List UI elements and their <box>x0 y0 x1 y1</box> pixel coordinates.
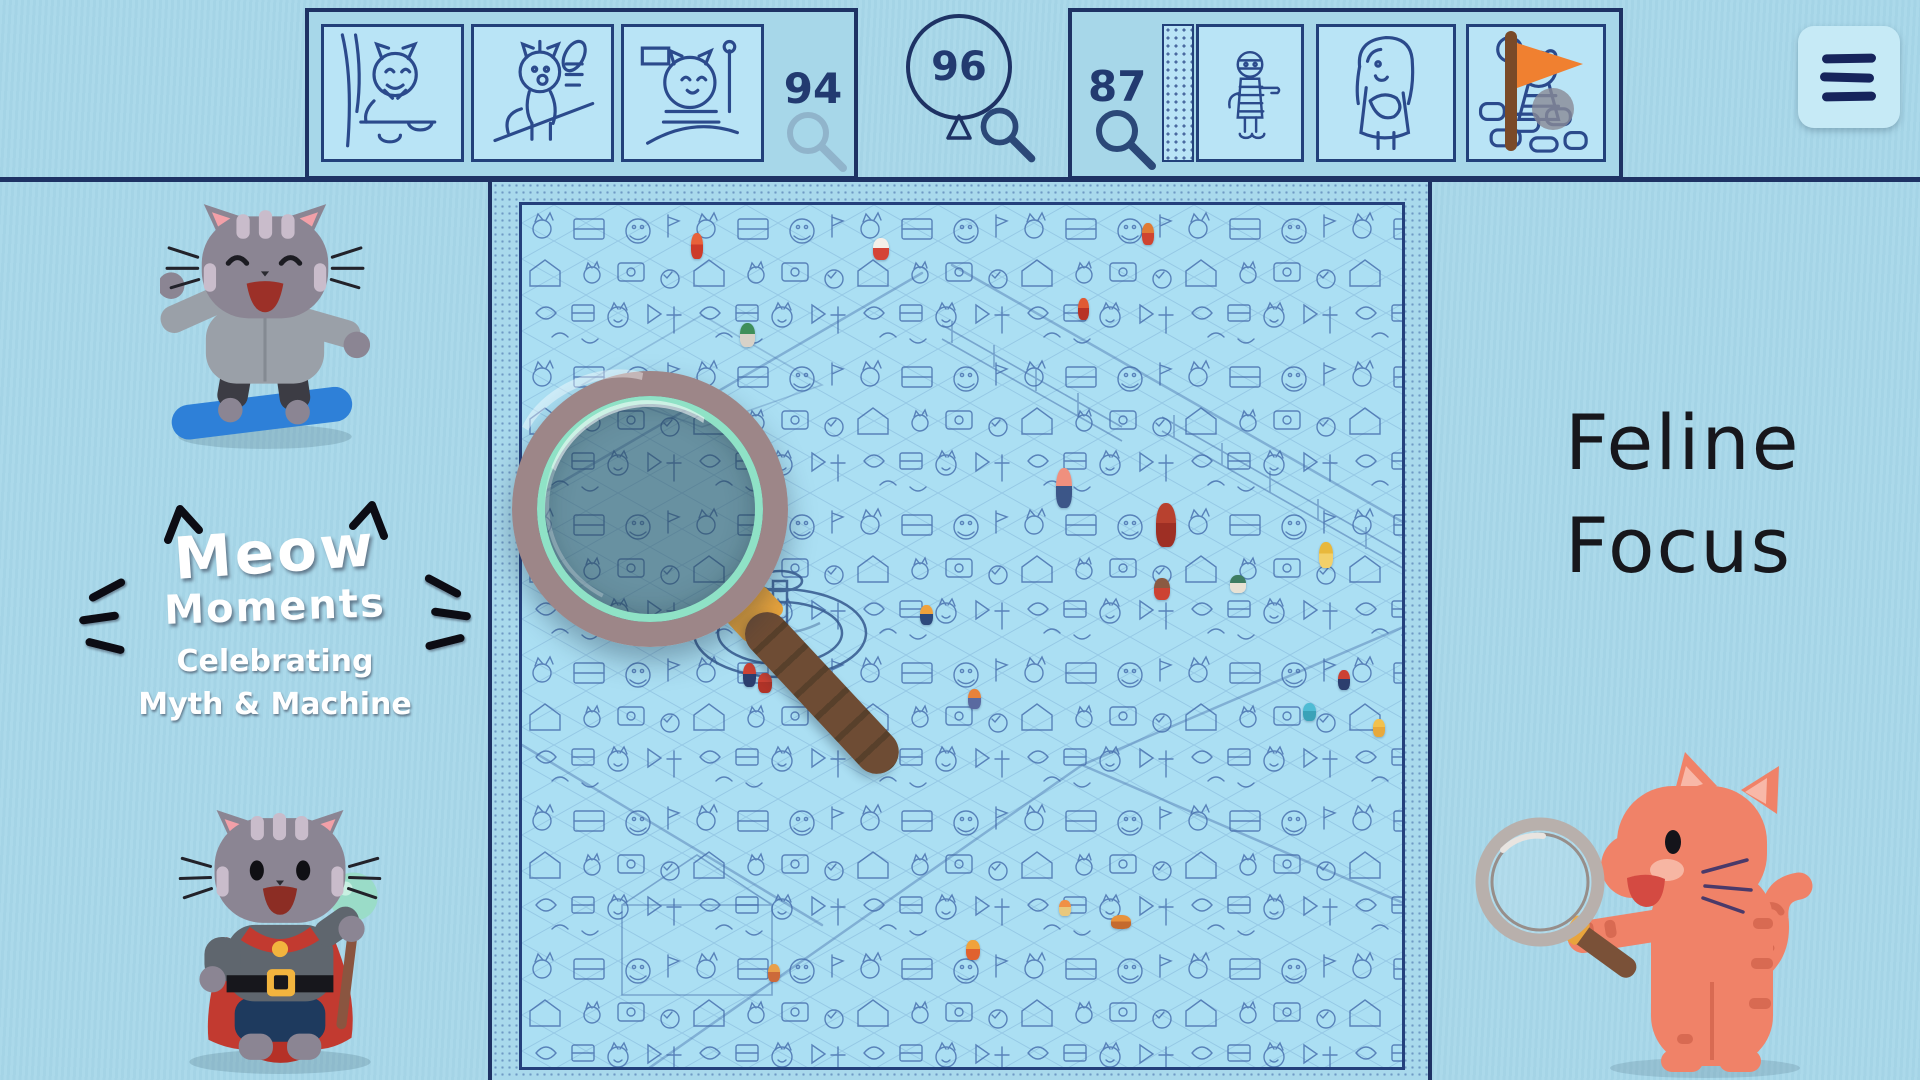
magnifying-glass-icon[interactable] <box>1090 104 1160 174</box>
found-items-panel-left: 94 <box>305 8 858 180</box>
red-climber-sprite[interactable] <box>1078 298 1089 320</box>
violinist-sprite[interactable] <box>1338 670 1350 690</box>
startled-cat-doodle-icon <box>474 27 611 159</box>
fountain-kid-sprite[interactable] <box>920 605 933 625</box>
magnifying-glass-icon[interactable] <box>975 102 1041 168</box>
halftone-strip <box>1162 24 1194 162</box>
orange-flag-icon <box>1471 25 1605 157</box>
orange-kitten-sprite[interactable] <box>1059 900 1071 916</box>
menu-button[interactable] <box>1798 26 1900 128</box>
kneeling-red-robe-sprite[interactable] <box>758 673 772 693</box>
magnifying-glass-icon[interactable] <box>781 106 851 176</box>
startled-cat-on-table-thumbnail[interactable] <box>471 24 614 162</box>
cat-on-ride-doodle-icon <box>624 27 761 159</box>
balloon-counter-value: 96 <box>931 44 987 90</box>
teal-mermaid-sprite[interactable] <box>1303 703 1316 721</box>
red-caped-bear-sprite[interactable] <box>1154 578 1170 600</box>
balloon-knot-icon <box>944 114 974 142</box>
red-climbing-kid-sprite[interactable] <box>691 233 703 259</box>
found-items-panel-right: 87 <box>1068 8 1623 180</box>
girl-doodle-icon <box>1319 27 1453 159</box>
teal-turtle-sprite[interactable] <box>1230 575 1246 593</box>
red-hooded-wizard-sprite[interactable] <box>1156 503 1176 547</box>
orange-wagon-sprite[interactable] <box>1111 915 1131 929</box>
snowboarding-cat-illustration <box>160 200 370 455</box>
yellow-cat-sprite[interactable] <box>1373 719 1385 737</box>
chubby-cat-on-ride-thumbnail[interactable] <box>621 24 764 162</box>
logo-tagline-2: Myth & Machine <box>85 687 465 722</box>
cat-nibbling-doodle-icon <box>324 27 461 159</box>
yellow-dress-woman-sprite[interactable] <box>1319 542 1333 568</box>
meow-moments-logo: Meow Moments Celebrating Myth & Machine <box>85 518 465 722</box>
logo-tagline-1: Celebrating <box>85 644 465 679</box>
wizard-cat-illustration <box>160 808 400 1080</box>
game-title: Feline Focus <box>1565 392 1800 597</box>
flame-witch-cat-sprite[interactable] <box>966 940 980 960</box>
search-magnifier-lens[interactable] <box>512 371 788 647</box>
game-title-line2: Focus <box>1565 495 1800 598</box>
white-cat-red-shirt-sprite[interactable] <box>873 238 889 260</box>
hamburger-icon <box>1822 92 1876 102</box>
hamburger-icon <box>1822 54 1876 64</box>
girl-hugging-satchel-thumbnail[interactable] <box>1316 24 1456 162</box>
green-hat-cat-sprite[interactable] <box>740 323 755 347</box>
bear-cub-with-balloon-thumbnail[interactable] <box>1466 24 1606 162</box>
orange-haired-girl-sprite[interactable] <box>968 689 981 709</box>
orange-cat-with-magnifier-illustration <box>1455 730 1815 1080</box>
boy-with-staff-sprite[interactable] <box>743 663 756 687</box>
orange-walker-sprite[interactable] <box>768 964 780 982</box>
top-divider-line <box>0 177 1920 182</box>
pink-haired-woman-sprite[interactable] <box>1056 468 1072 508</box>
mummy-doodle-icon <box>1199 27 1301 159</box>
hamburger-icon <box>1820 72 1874 82</box>
mummy-thumbnail[interactable] <box>1196 24 1304 162</box>
game-screen: 94 96 87 <box>0 0 1920 1080</box>
orange-vendor-sprite[interactable] <box>1142 223 1154 245</box>
game-title-line1: Feline <box>1565 392 1800 495</box>
cat-nibbling-at-table-thumbnail[interactable] <box>321 24 464 162</box>
